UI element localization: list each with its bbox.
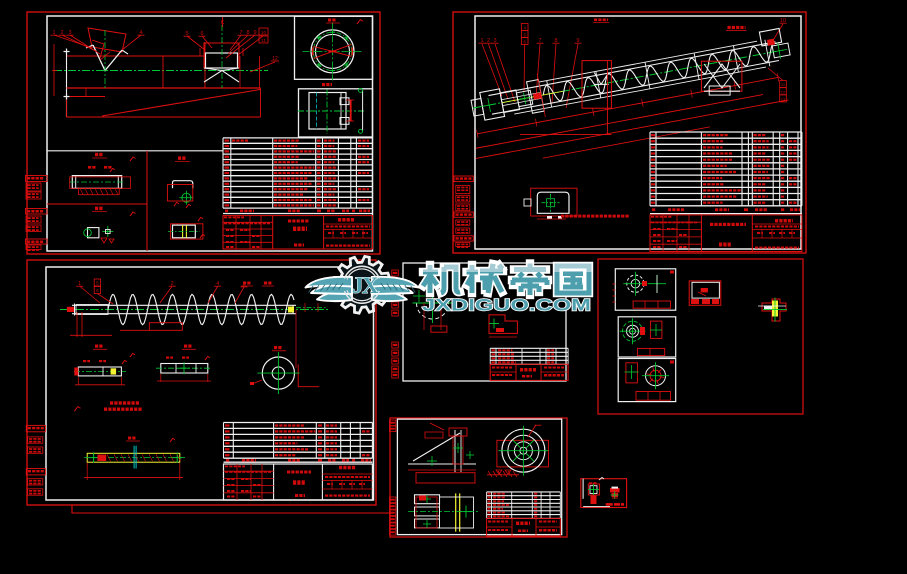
svg-text:12: 12 <box>781 89 786 94</box>
svg-text:10: 10 <box>261 30 267 35</box>
svg-text:JXDIGUO.COM: JXDIGUO.COM <box>422 297 591 315</box>
svg-text:11: 11 <box>261 38 266 43</box>
svg-text:JX: JX <box>352 273 379 298</box>
